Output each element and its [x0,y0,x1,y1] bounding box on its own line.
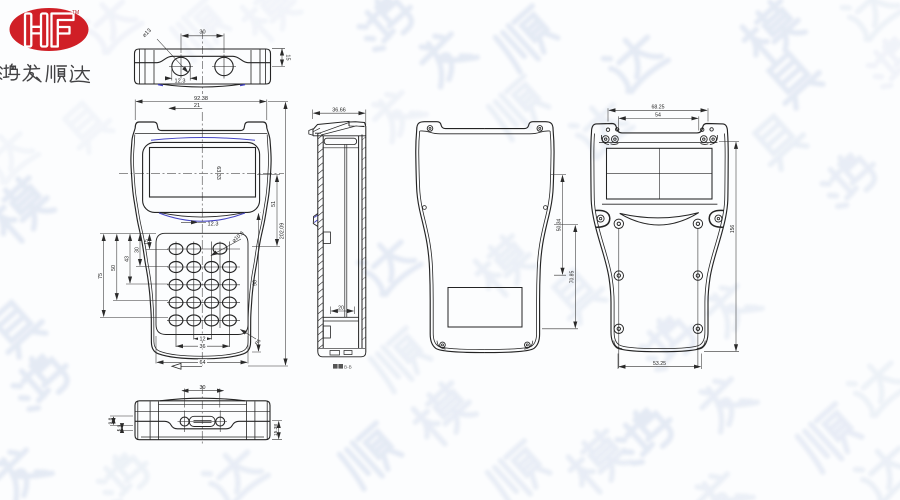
svg-text:B-B: B-B [344,365,352,370]
svg-text:54: 54 [655,113,661,119]
svg-text:43: 43 [124,256,130,262]
svg-text:15: 15 [144,239,150,245]
svg-text:63.33: 63.33 [215,166,221,180]
svg-text:75: 75 [98,273,104,279]
svg-text:12.3: 12.3 [175,79,186,85]
svg-text:36.66: 36.66 [332,107,346,113]
svg-text:TM: TM [72,10,79,16]
svg-text:30: 30 [199,30,205,36]
svg-text:70.85: 70.85 [570,271,576,284]
svg-text:50: 50 [111,265,117,271]
svg-text:68.25: 68.25 [652,105,665,111]
svg-text:15.38: 15.38 [273,424,279,436]
svg-text:21: 21 [194,103,200,109]
svg-text:15: 15 [285,54,291,60]
svg-text:156: 156 [730,225,736,234]
svg-text:98: 98 [253,280,259,286]
svg-text:12.3: 12.3 [208,222,219,228]
svg-text:30: 30 [134,247,140,253]
svg-text:36: 36 [200,344,206,350]
svg-text:64: 64 [200,360,206,366]
svg-text:51: 51 [271,201,277,207]
svg-text:12: 12 [200,336,206,342]
svg-text:5.9: 5.9 [116,424,122,431]
svg-text:92.38: 92.38 [194,96,208,102]
svg-text:20: 20 [338,305,344,311]
svg-text:50.34: 50.34 [557,219,563,232]
svg-text:202.09: 202.09 [280,223,286,240]
svg-text:9.8: 9.8 [108,417,114,424]
svg-text:53.25: 53.25 [653,361,666,367]
svg-text:30: 30 [200,385,206,391]
